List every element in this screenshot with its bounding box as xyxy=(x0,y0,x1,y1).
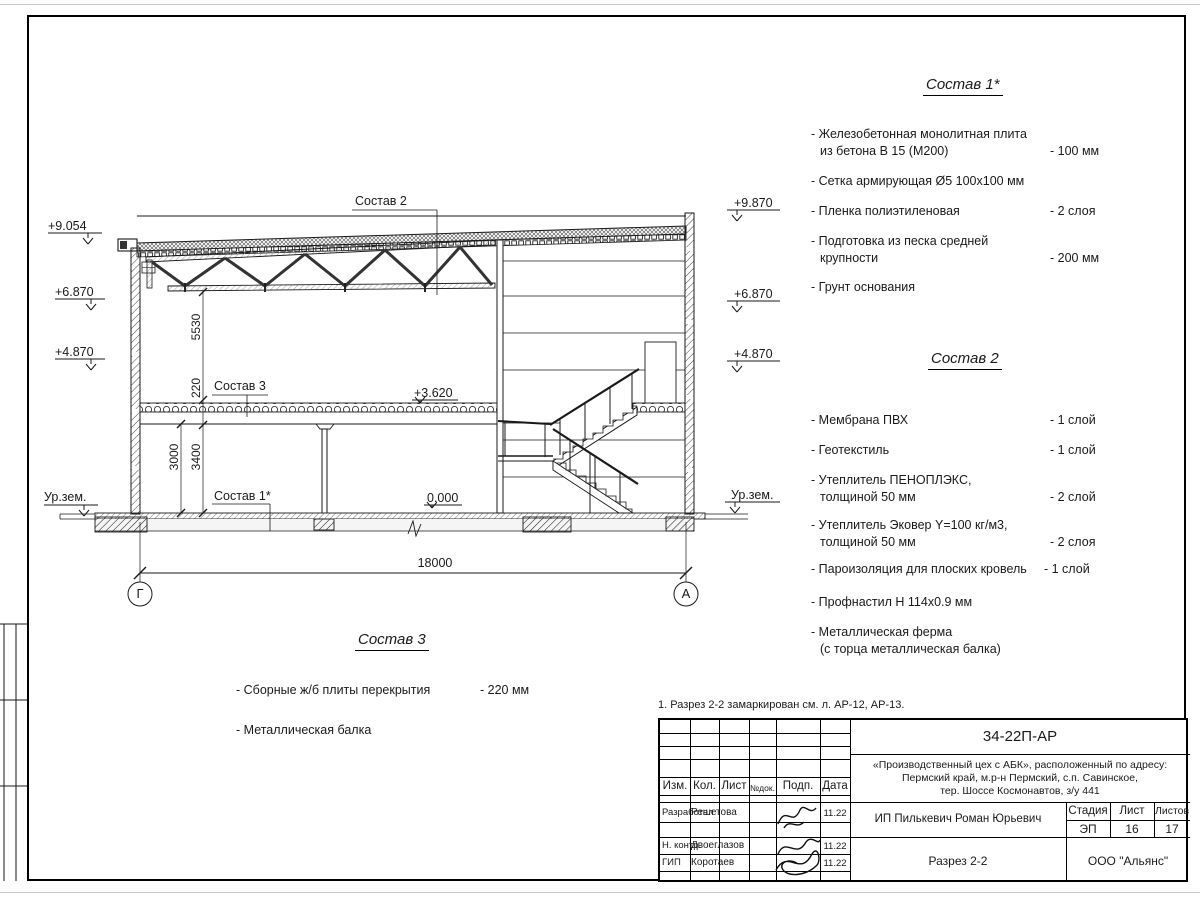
list-item: - Пароизоляция для плоских кровель - 1 с… xyxy=(811,561,1200,578)
elevation-label: +3.620 xyxy=(414,386,453,400)
tb-header: Лист xyxy=(719,780,749,792)
tb-name: Двоеглазов xyxy=(691,840,744,851)
tb-header: Изм. xyxy=(660,780,690,792)
tb-stage-value: ЭП xyxy=(1066,822,1110,836)
list-item: - Утеплитель ПЕНОПЛЭКС, толщиной 50 мм -… xyxy=(811,472,1200,506)
tb-header: Подп. xyxy=(776,780,820,792)
elevation-label: Ур.зем. xyxy=(44,490,86,504)
dimension-label: 3000 xyxy=(167,435,181,479)
roof xyxy=(118,216,686,257)
elevation-label: +4.870 xyxy=(55,345,94,359)
list-item: - Сборные ж/б плиты перекрытия - 220 мм xyxy=(236,682,626,699)
door xyxy=(645,342,676,403)
tb-drawing-title: Разрез 2-2 xyxy=(850,854,1066,868)
title-block: Изм. Кол. Лист №док. Подп. Дата Разработ… xyxy=(658,718,1188,882)
list-item: - Металлическая балка xyxy=(236,722,626,739)
list-item: - Профнастил Н 114x0.9 мм xyxy=(811,594,1200,611)
tb-name: Коротаев xyxy=(691,857,734,868)
tb-date: 11.22 xyxy=(820,858,850,869)
list-item: - Геотекстиль - 1 слой xyxy=(811,442,1200,459)
drawing-sheet: +9.054 +6.870 +4.870 Ур.зем. +9.870 +6.8… xyxy=(0,0,1200,900)
ground-floor xyxy=(60,513,748,536)
elevation-label: +9.054 xyxy=(48,219,87,233)
elevation-label: +6.870 xyxy=(55,285,94,299)
tb-client: ИП Пилькевич Роман Юрьевич xyxy=(850,813,1066,825)
dimension-label: 18000 xyxy=(400,556,470,570)
tb-header: Кол. xyxy=(690,780,719,792)
list-item: - Грунт основания xyxy=(811,279,1200,296)
elevation-label: 0.000 xyxy=(427,491,458,505)
tb-sheet-label: Лист xyxy=(1110,805,1154,817)
elevation-label: +4.870 xyxy=(734,347,773,361)
tb-name: Решетова xyxy=(691,807,737,818)
leader-label-slab: Состав 3 xyxy=(214,379,266,393)
grid-axis-label: Г xyxy=(130,586,150,601)
list-item: - Металлическая ферма (с торца металличе… xyxy=(811,624,1200,658)
tb-sheet-value: 16 xyxy=(1110,822,1154,836)
tb-sheets-value: 17 xyxy=(1154,822,1190,836)
dimension-label: 220 xyxy=(189,366,203,410)
list-item: - Сетка армирующая Ø5 100x100 мм xyxy=(811,173,1200,190)
elevation-label: +9.870 xyxy=(734,196,773,210)
right-wall xyxy=(685,213,694,514)
list-title-sostav1: Состав 1* xyxy=(923,76,1003,96)
left-edge-stamp xyxy=(0,624,27,881)
list-title-sostav3: Состав 3 xyxy=(355,631,429,651)
list-title-sostav2: Состав 2 xyxy=(928,350,1002,370)
tb-date: 11.22 xyxy=(820,808,850,819)
list-item: - Утеплитель Эковер Y=100 кг/м3, толщино… xyxy=(811,517,1200,551)
signature xyxy=(772,834,824,887)
elevation-label: +6.870 xyxy=(734,287,773,301)
tb-role: ГИП xyxy=(662,857,681,868)
tb-date: 11.22 xyxy=(820,841,850,852)
leader-label-floor: Состав 1* xyxy=(214,489,271,503)
floor-slab xyxy=(140,403,685,424)
tb-header: Дата xyxy=(820,780,850,792)
tb-sheets-label: Листов xyxy=(1154,805,1190,817)
grid-axis-label: А xyxy=(676,586,696,601)
tb-company: ООО "Альянс" xyxy=(1066,854,1190,868)
list-item: - Подготовка из песка средней крупности … xyxy=(811,233,1200,267)
tb-header: №док. xyxy=(749,783,776,793)
staircase xyxy=(498,369,639,513)
dimension-label: 5530 xyxy=(189,305,203,349)
leader-lines xyxy=(212,210,437,531)
sheet-note: 1. Разрез 2-2 замаркирован см. л. АР-12,… xyxy=(658,699,904,711)
leader-label-roof: Состав 2 xyxy=(355,194,407,208)
elevation-label: Ур.зем. xyxy=(731,488,773,502)
tb-project: «Производственный цех с АБК», расположен… xyxy=(855,759,1185,798)
signature xyxy=(774,800,820,837)
column xyxy=(316,424,334,513)
dimension-label: 3400 xyxy=(189,435,203,479)
list-item: - Железобетонная монолитная плита из бет… xyxy=(811,126,1200,160)
list-item: - Мембрана ПВХ - 1 слой xyxy=(811,412,1200,429)
tb-stage-label: Стадия xyxy=(1066,805,1110,817)
list-item: - Пленка полиэтиленовая - 2 слоя xyxy=(811,203,1200,220)
tb-doc-code: 34-22П-АР xyxy=(850,728,1190,745)
